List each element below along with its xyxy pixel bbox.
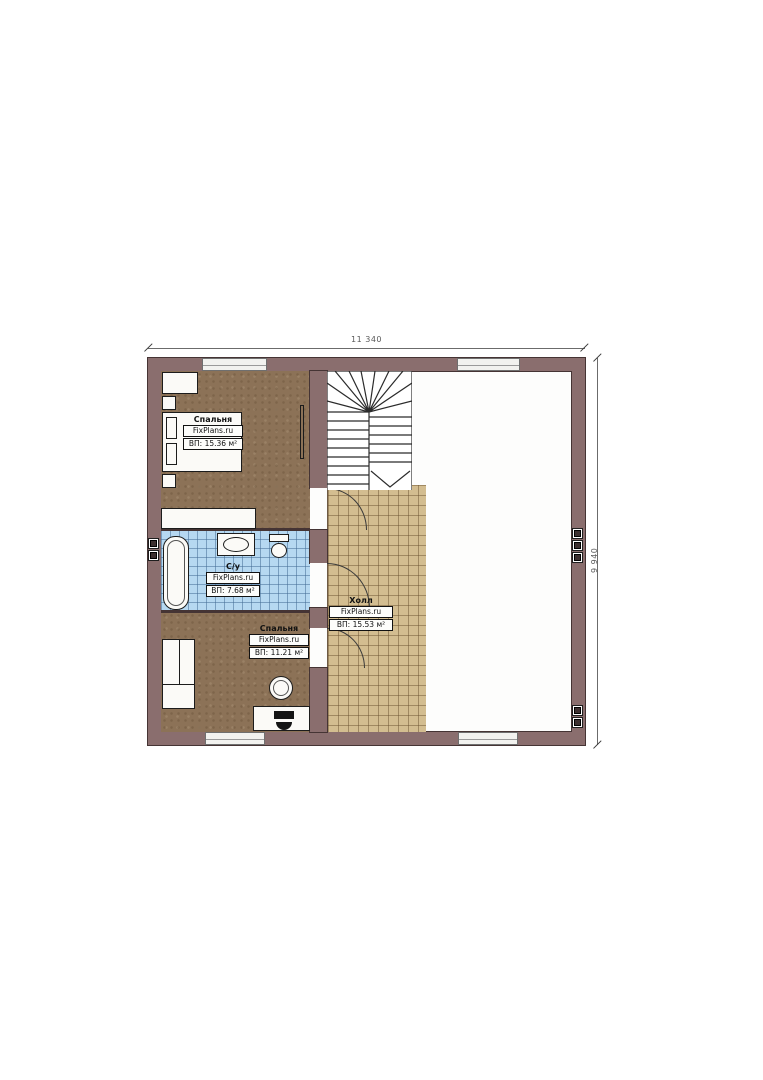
vent-icon [572, 528, 585, 563]
wall-inner [310, 608, 327, 628]
window-icon [202, 358, 267, 371]
laptop-icon [274, 711, 294, 719]
wall-inner [310, 668, 327, 732]
desk-icon [253, 706, 310, 731]
stool-icon [269, 676, 293, 700]
room-label-bedroom-bottom: Спальня FixPlans.ru ВП: 11.21 м² [249, 624, 309, 659]
dimension-height-label: 9 940 [590, 548, 599, 573]
wardrobe-icon [162, 639, 195, 709]
radiator-icon [300, 405, 304, 459]
room-label-bedroom-top: Спальня FixPlans.ru ВП: 15.36 м² [183, 415, 243, 450]
toilet-icon [269, 534, 289, 542]
fixplans-watermark: FixPlans.ru [206, 572, 260, 584]
door-opening [310, 563, 327, 608]
room-name: Холл [329, 596, 393, 605]
room-area: ВП: 15.36 м² [183, 438, 243, 450]
fixplans-watermark: FixPlans.ru [249, 634, 309, 646]
wall-inner [310, 371, 327, 488]
room-name: Спальня [249, 624, 309, 633]
door-opening [310, 488, 327, 530]
floor-plan: Спальня FixPlans.ru ВП: 15.36 м² С/у Fix… [148, 358, 585, 745]
window-icon [457, 358, 520, 371]
window-icon [458, 732, 518, 745]
dresser-icon [161, 508, 256, 529]
room-area: ВП: 7.68 м² [206, 585, 260, 597]
dimension-width-label: 11 340 [148, 335, 585, 344]
floor-plan-page: { "plan": { "title": "second-floor plan"… [0, 0, 763, 1080]
toilet-bowl-icon [271, 543, 287, 558]
room-area: ВП: 15.53 м² [329, 619, 393, 631]
wall-partition [161, 610, 310, 613]
nightstand-icon [162, 396, 176, 410]
wardrobe-icon [162, 372, 198, 394]
fixplans-watermark: FixPlans.ru [183, 425, 243, 437]
chair-icon [276, 722, 292, 730]
room-area: ВП: 11.21 м² [249, 647, 309, 659]
door-opening [310, 628, 327, 668]
sink-bowl-icon [223, 537, 249, 552]
room-name: С/у [206, 562, 260, 571]
bathtub-icon [163, 536, 189, 610]
room-label-bathroom: С/у FixPlans.ru ВП: 7.68 м² [206, 562, 260, 597]
stairs-icon [327, 371, 412, 490]
vent-icon [148, 538, 161, 561]
vent-icon [572, 705, 585, 728]
dimension-line-top [148, 348, 585, 349]
room-name: Спальня [183, 415, 243, 424]
pillow-icon [166, 417, 177, 439]
nightstand-icon [162, 474, 176, 488]
window-icon [205, 732, 265, 745]
room-label-hall: Холл FixPlans.ru ВП: 15.53 м² [329, 596, 393, 631]
sink-icon [217, 533, 255, 556]
pillow-icon [166, 443, 177, 465]
wall-inner [310, 530, 327, 563]
fixplans-watermark: FixPlans.ru [329, 606, 393, 618]
